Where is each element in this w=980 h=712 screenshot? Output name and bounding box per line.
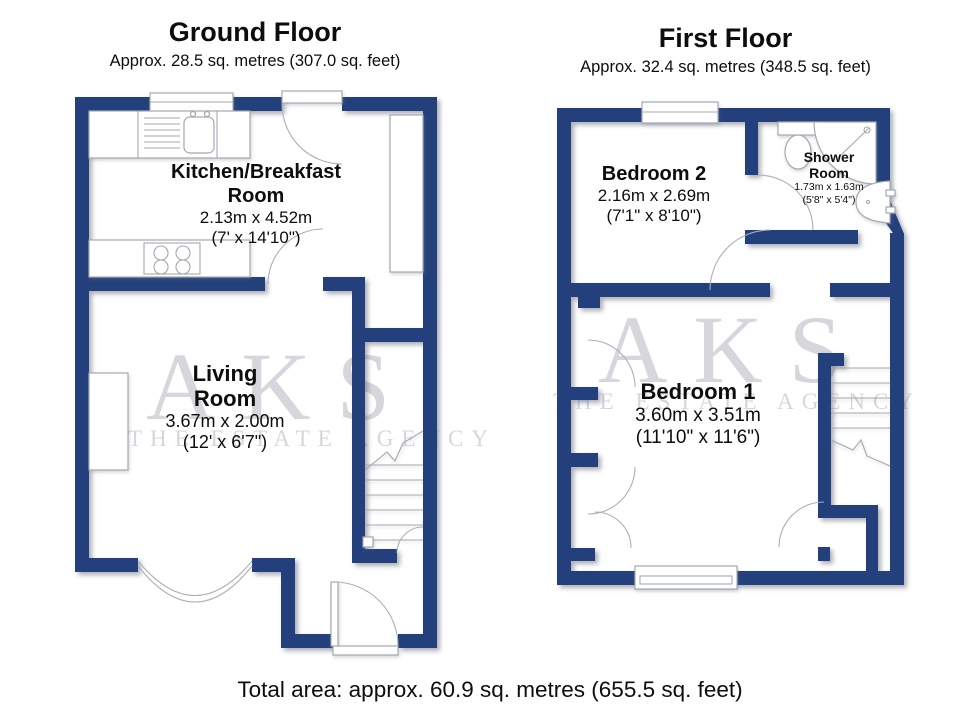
room-name: Kitchen/Breakfast (120, 160, 392, 184)
front-door-threshold (333, 646, 398, 655)
room-label-shower-room: Shower Room 1.73m x 1.63m (5'8" x 5'4") (766, 149, 892, 207)
room-dims-metric: 3.60m x 3.51m (567, 405, 829, 427)
room-dims-imperial: (11'10" x 11'6") (567, 427, 829, 449)
bedroom1-window (635, 566, 737, 589)
bay-window-inner (138, 561, 252, 596)
room-name: Living (95, 361, 355, 386)
ground-floor-subtitle: Approx. 28.5 sq. metres (307.0 sq. feet) (60, 51, 450, 71)
room-name: Shower (766, 149, 892, 165)
room-label-living-room: Living Room 3.67m x 2.00m (12' x 6'7") (95, 361, 355, 453)
room-dims-metric: 2.13m x 4.52m (120, 208, 392, 228)
room-name: Room (120, 184, 392, 208)
bedroom1-door-arc (779, 502, 824, 547)
room-dims-imperial: (5'8" x 5'4") (766, 194, 892, 207)
back-door-arc (282, 104, 342, 164)
room-dims-imperial: (12' x 6'7") (95, 432, 355, 453)
room-dims-metric: 1.73m x 1.63m (766, 181, 892, 194)
closet-door-arc-3 (595, 512, 631, 548)
front-door-arc (334, 582, 398, 646)
bay-window-outer (138, 566, 252, 602)
first-floor-subtitle: Approx. 32.4 sq. metres (348.5 sq. feet) (548, 57, 903, 77)
tap (191, 112, 196, 117)
room-name: Room (766, 165, 892, 181)
worktop (390, 115, 423, 272)
room-name: Bedroom 2 (546, 163, 762, 186)
room-dims-imperial: (7'1" x 8'10") (546, 206, 762, 226)
room-dims-metric: 2.16m x 2.69m (546, 186, 762, 206)
room-dims-metric: 3.67m x 2.00m (95, 411, 355, 432)
stairs-first (831, 368, 890, 466)
floorplan-page: AKS THE ESTATE AGENCY AKS THE ESTATE AGE… (0, 0, 980, 712)
stairs-ground (363, 431, 423, 547)
tap (205, 112, 210, 117)
room-dims-imperial: (7' x 14'10") (120, 228, 392, 248)
closet-door-arc-2 (588, 467, 635, 514)
total-area-text: Total area: approx. 60.9 sq. metres (655… (0, 677, 980, 703)
room-label-kitchen-breakfast-room: Kitchen/Breakfast Room 2.13m x 4.52m (7'… (120, 160, 392, 248)
room-label-bedroom-1: Bedroom 1 3.60m x 3.51m (11'10" x 11'6") (567, 379, 829, 449)
ground-floor-title: Ground Floor (60, 16, 450, 48)
room-name: Bedroom 1 (567, 379, 829, 405)
front-door-leaf (331, 582, 338, 646)
room-name: Room (95, 386, 355, 411)
kitchen-sink (184, 117, 214, 153)
first-floor-title: First Floor (548, 22, 903, 54)
back-door-leaf (282, 91, 342, 103)
room-label-bedroom-2: Bedroom 2 2.16m x 2.69m (7'1" x 8'10") (546, 163, 762, 226)
